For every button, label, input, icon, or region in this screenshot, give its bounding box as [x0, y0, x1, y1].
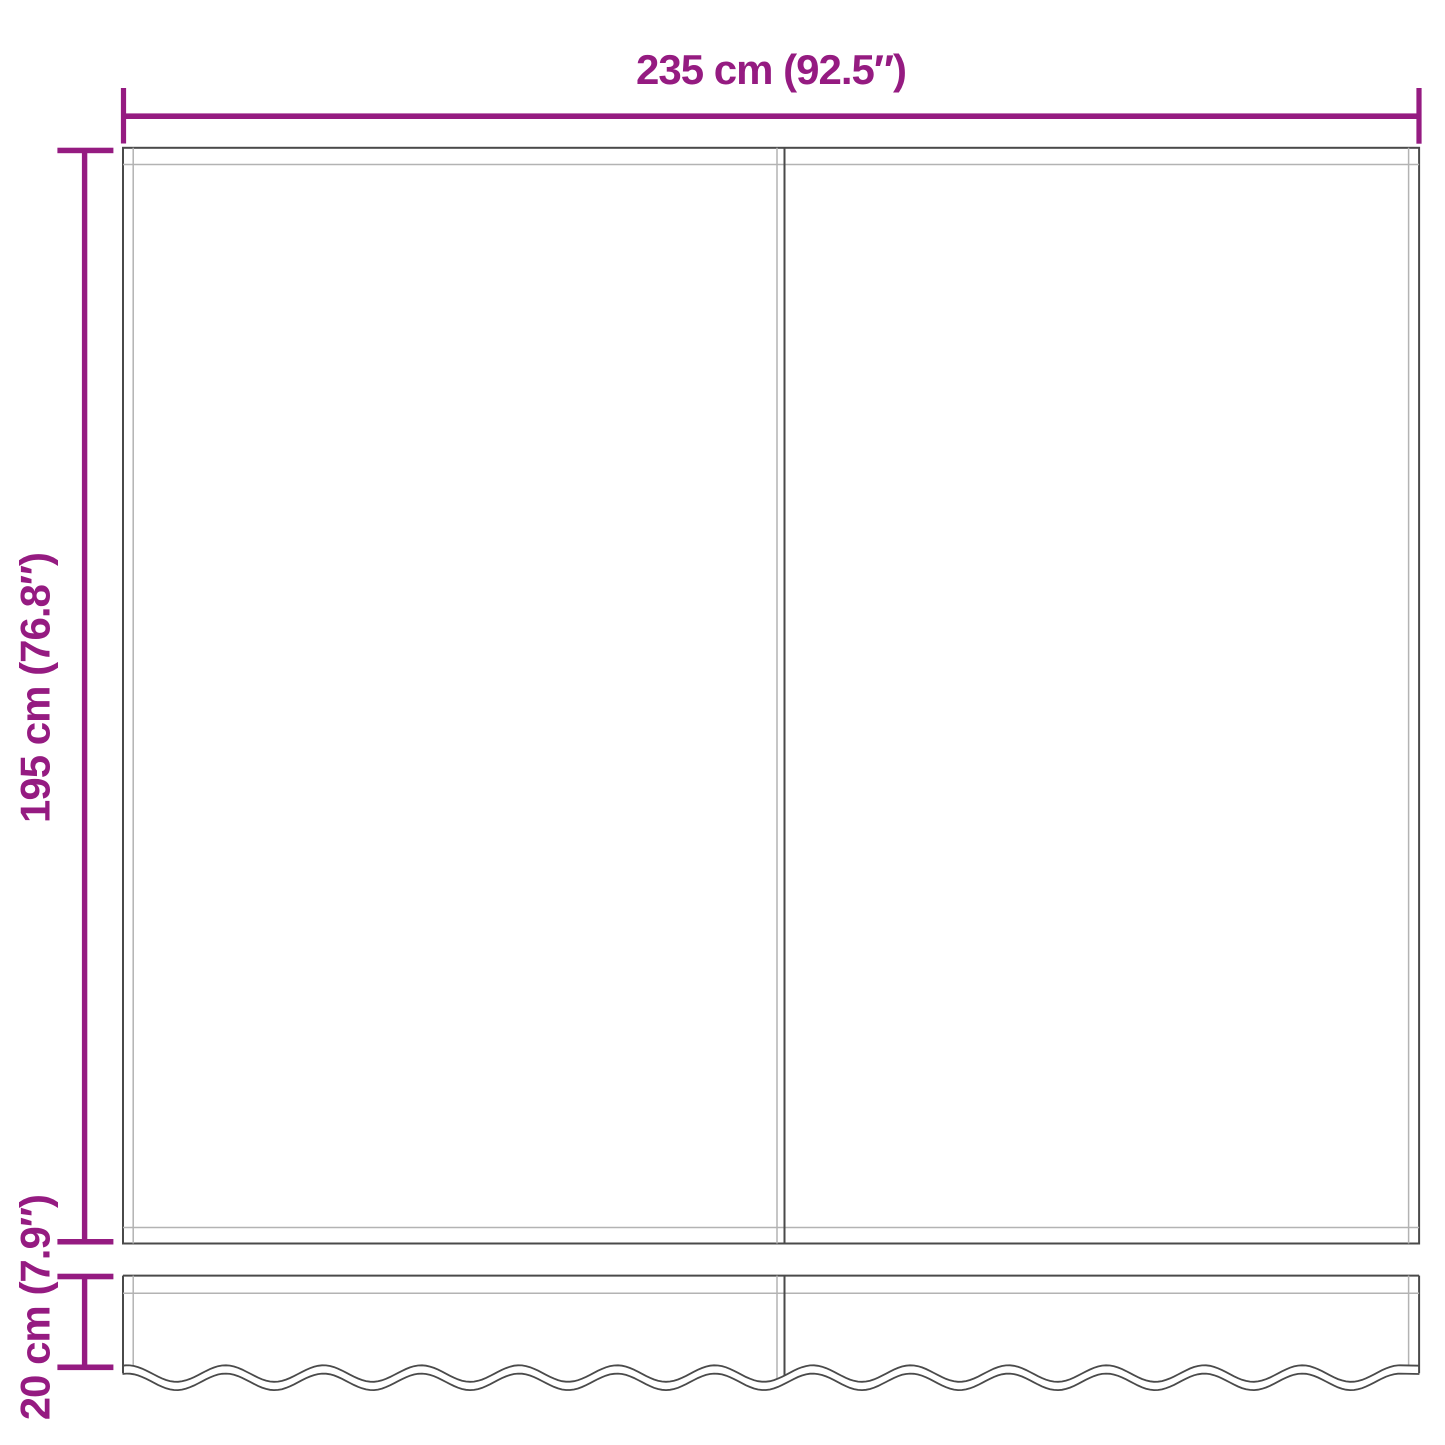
svg-text:195 cm (76.8″): 195 cm (76.8″) [12, 553, 59, 823]
svg-text:235 cm (92.5″): 235 cm (92.5″) [636, 46, 906, 93]
svg-text:20 cm (7.9″): 20 cm (7.9″) [12, 1195, 59, 1420]
